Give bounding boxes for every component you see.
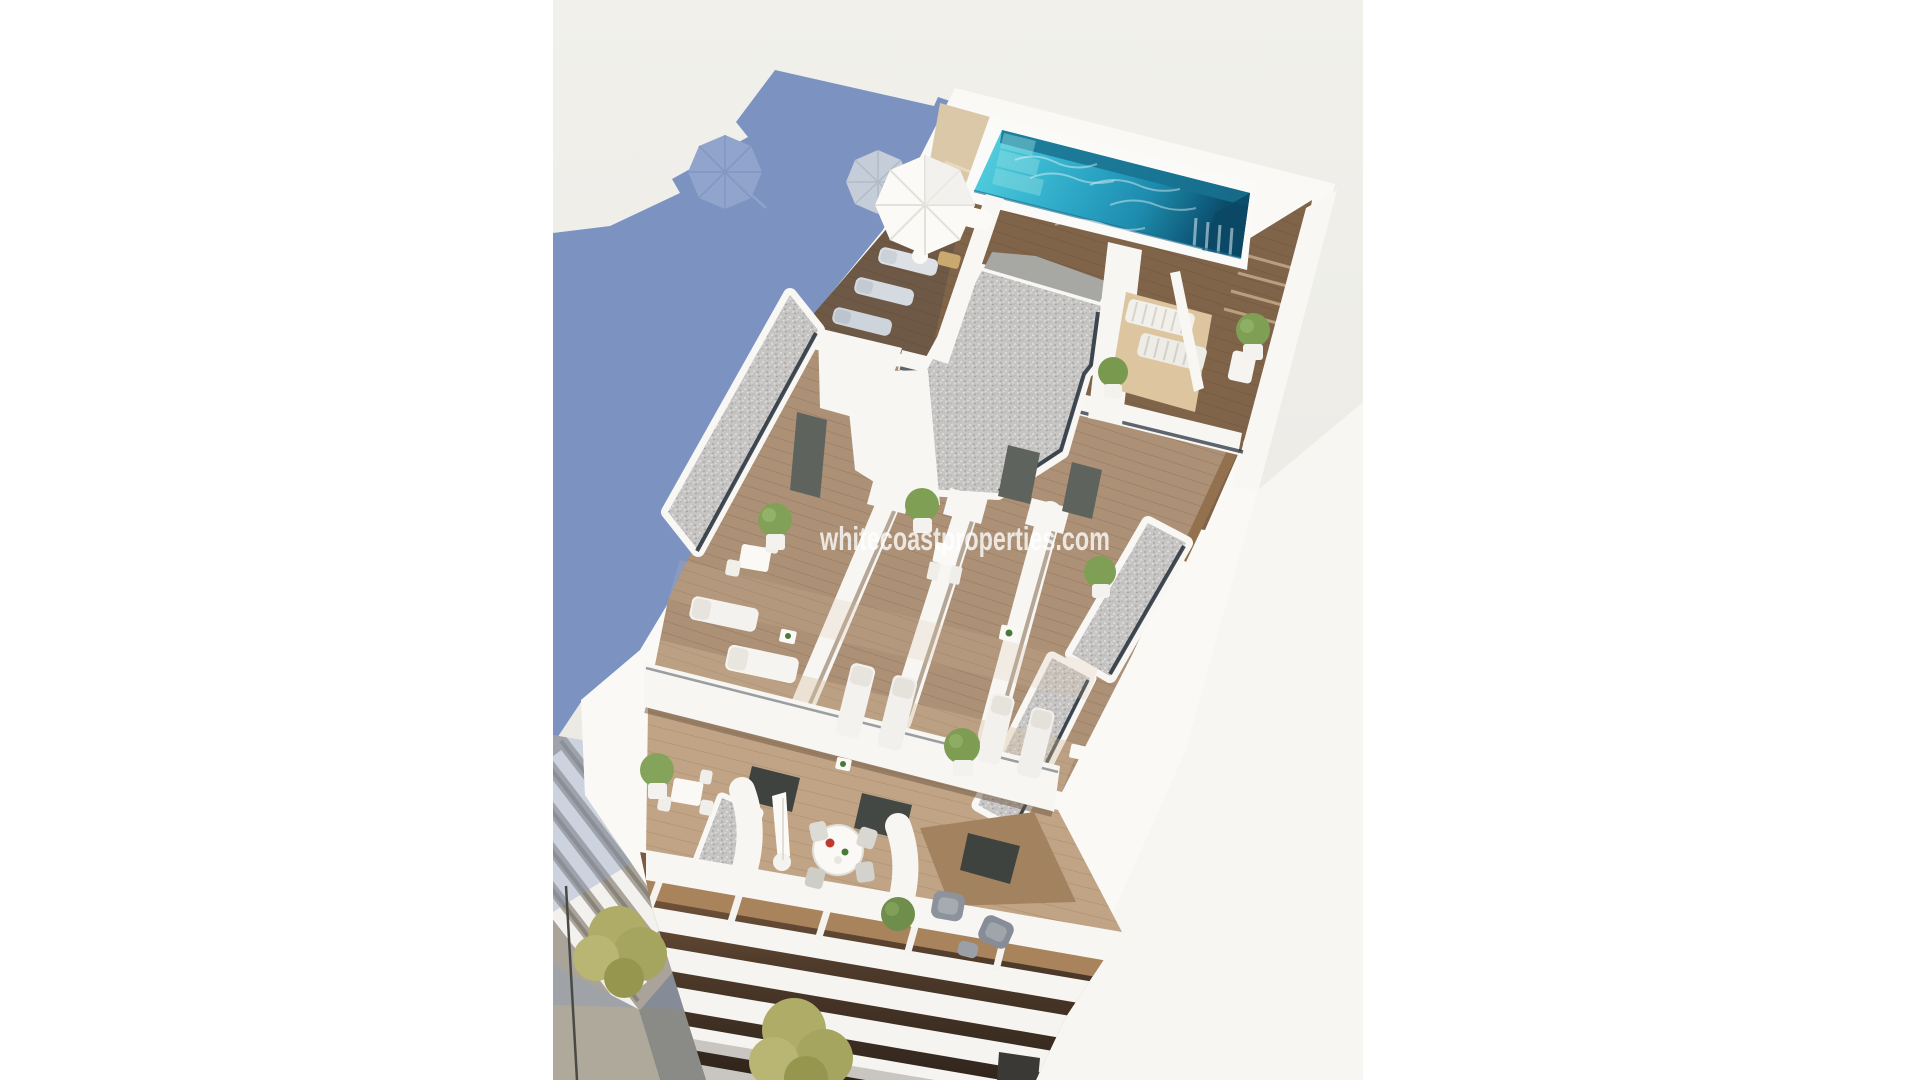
svg-text:whitecoastproperties.com: whitecoastproperties.com	[819, 520, 1110, 557]
